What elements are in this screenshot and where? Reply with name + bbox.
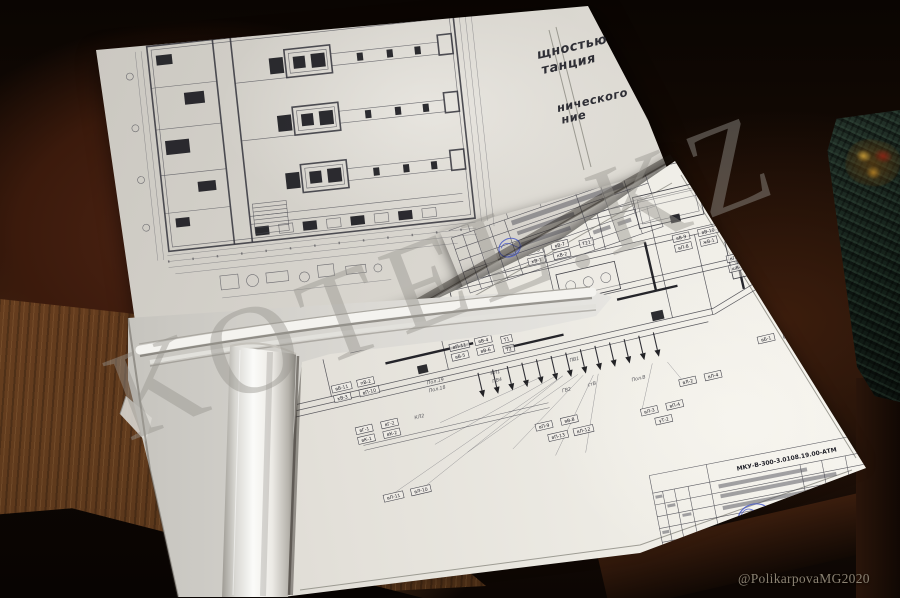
bottom-sheet-shadow-wrap — [0, 0, 900, 598]
bottom-drawing-sheet — [0, 0, 900, 598]
credit-watermark: @PolikarpovaMG2020 — [738, 571, 870, 587]
photo-of-blueprints: вВ-1вВ-2вВ-3вП-1вП-2уВ-3вП-3вВ-7кВ-1кВ-2… — [0, 0, 900, 598]
